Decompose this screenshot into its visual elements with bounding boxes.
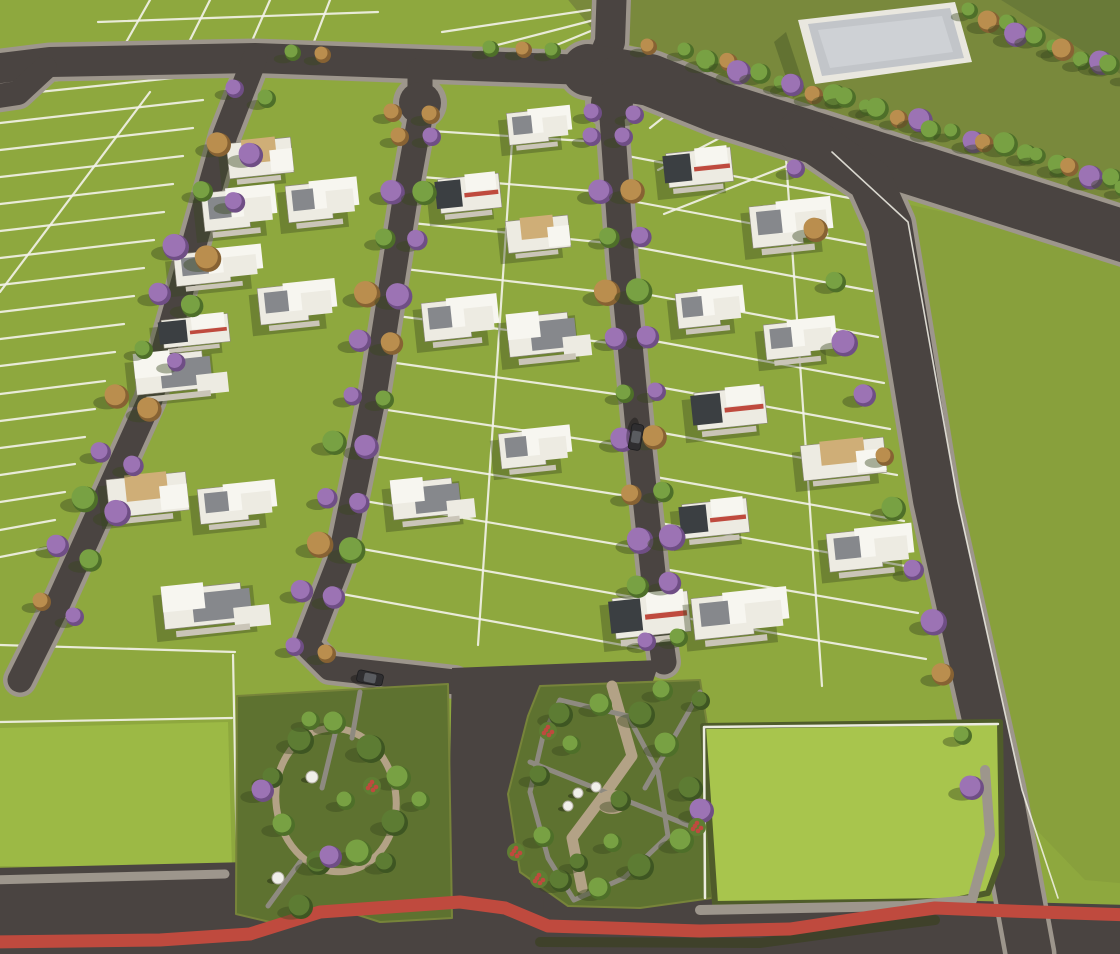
sports-field <box>703 722 1002 904</box>
southwest-lot <box>0 722 232 868</box>
aerial-site-render <box>0 0 1120 954</box>
boulevard-sidewalk <box>0 874 225 880</box>
scene-canvas <box>0 0 1120 954</box>
